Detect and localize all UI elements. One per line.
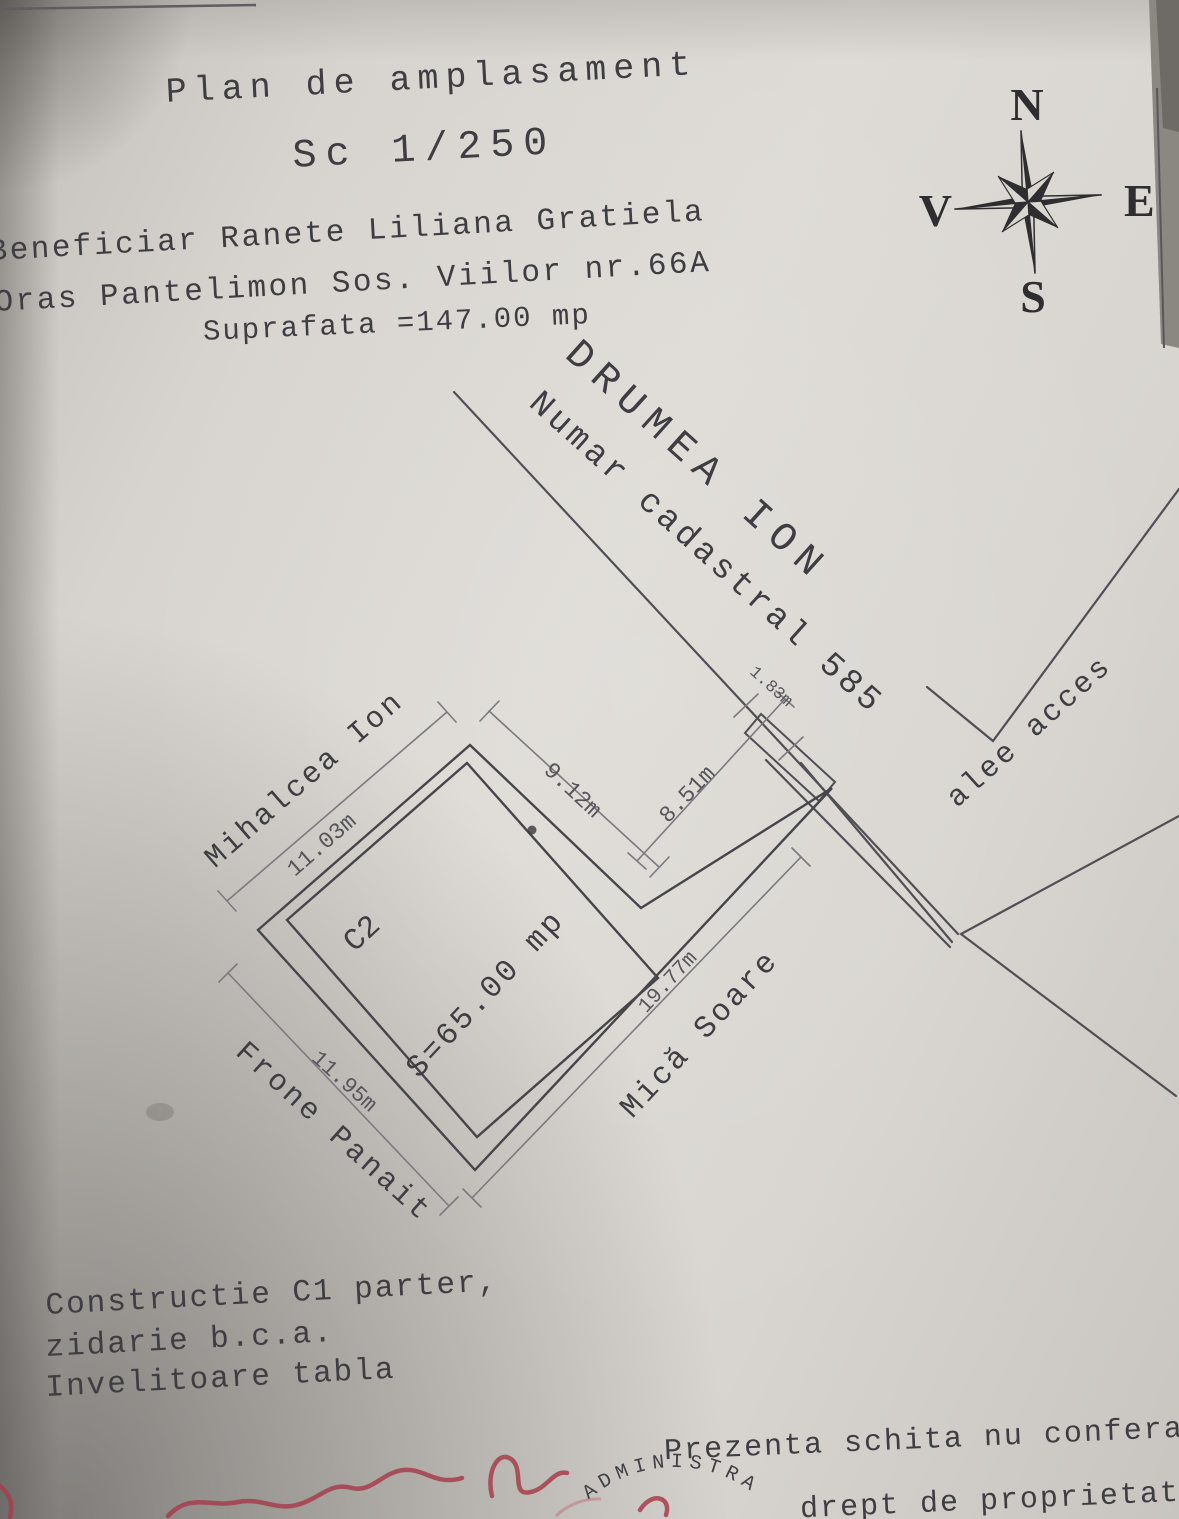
dim-top-b-label: 8.51m [654,761,721,829]
red-handwriting-be [490,1457,567,1496]
road-cadastral-label: Numar cadastral 585 [520,385,890,723]
scanned-site-plan: Plan de amplasament Sc 1/250 Beneficiar … [0,0,1179,1519]
building-label: C2 [337,909,388,960]
plan-drawing: Plan de amplasament Sc 1/250 Beneficiar … [0,0,1179,1519]
alee-acces-lower-line [961,816,1179,1096]
dim-top-a-label: 9.12m [538,758,606,824]
ink-blot [528,826,537,835]
dim-line-right [463,848,810,1207]
compass-south-label: S [1020,271,1046,322]
construction-note-1: Constructie C1 parter, [45,1265,499,1324]
compass-rose-icon [949,125,1107,279]
dim-right-label: 19.77m [635,947,703,1018]
compass-west-label: V [919,185,952,236]
surface-area-line: Suprafata =147.00 mp [202,299,591,349]
paper-edge-top-left [0,5,256,9]
red-handwriting-word [168,1470,462,1516]
alee-acces-label: alee acces [941,650,1120,816]
neighbor-right-label: Mică Soare [614,944,787,1126]
access-strip-line-a [766,760,950,947]
compass-north-label: N [1010,79,1043,130]
plan-scale: Sc 1/250 [291,121,557,180]
red-handwriting-mark [640,1498,667,1515]
access-strip-line-b [801,763,952,942]
disclaimer-line-1: Prezenta schita nu confera [663,1413,1179,1470]
red-handwriting-edge-mark [0,1486,11,1517]
disclaimer-line-2: drept de proprietate [799,1476,1179,1519]
building-area-label: S=65.00 mp [400,904,573,1086]
plan-title: Plan de amplasament [165,45,698,113]
shadow-smudge [146,1103,174,1121]
dim-strip-label: 1.83m [745,663,796,711]
compass-east-label: E [1124,175,1155,226]
